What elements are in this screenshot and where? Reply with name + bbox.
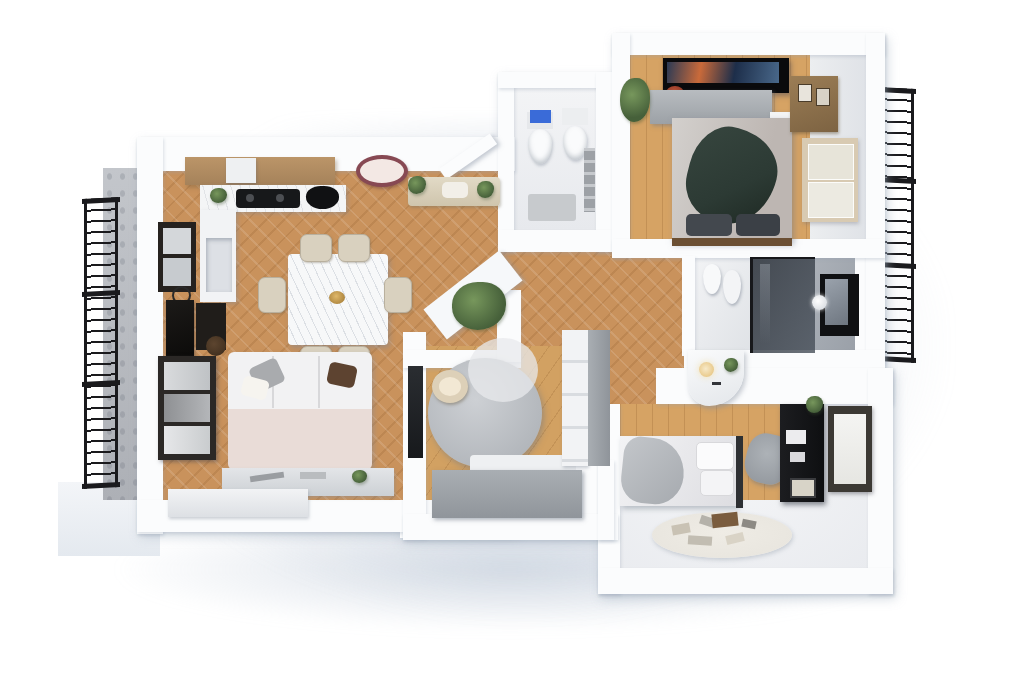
master-pillow [686, 214, 732, 236]
desk-frame [790, 478, 816, 498]
fruit-bowl [329, 291, 345, 304]
bed2-pillow [696, 442, 734, 470]
master-window-pane [808, 182, 854, 218]
master-window-pane [808, 144, 854, 180]
range-hood [226, 158, 256, 183]
left-balcony-railing [84, 197, 118, 489]
bath-wall-left [682, 256, 695, 356]
railing-bar [82, 197, 120, 204]
living-wall-left [137, 137, 163, 534]
wc-bath-mat [528, 194, 576, 221]
wall-niche [408, 366, 423, 458]
wc-wall-top [498, 72, 612, 88]
console-stool [206, 336, 226, 356]
master-wall-top [612, 33, 885, 55]
dining-chair [338, 234, 370, 262]
round-mirror [812, 295, 827, 310]
wc-blue-cistern [530, 110, 551, 123]
wc-wall-right [596, 72, 612, 252]
sofa-seat-line [318, 356, 320, 408]
console-decor [300, 472, 326, 479]
vanity-lamp [699, 362, 714, 377]
low-sideboard [168, 489, 308, 517]
pendant-lamp [356, 155, 408, 187]
kitchen-sink [306, 186, 339, 209]
desk-paper [790, 452, 805, 462]
media-shelf [164, 426, 210, 454]
wc-wall-shelf [584, 148, 595, 212]
bench-pillow [442, 182, 468, 198]
daybed-overlap [468, 338, 538, 402]
wall-art [166, 300, 194, 356]
dining-chair [384, 277, 412, 313]
master-tv-screen [667, 62, 779, 83]
railing-bar [82, 290, 120, 297]
wardrobe [562, 330, 588, 466]
shelf-frame [798, 84, 812, 102]
window-left-glass [163, 258, 191, 286]
dining-chair [258, 277, 286, 313]
bedroom2-window-glass [834, 414, 866, 484]
bath-picture-inner [825, 279, 848, 325]
master-pillow [736, 214, 780, 236]
window-left-glass [163, 228, 191, 254]
shelf-frame [816, 88, 830, 106]
bedroom2-wall-bottom [598, 568, 893, 594]
burner [246, 194, 254, 202]
dining-chair [300, 234, 332, 262]
master-foot-bench [672, 238, 792, 246]
rug-toy [711, 512, 738, 529]
corner-bench [432, 470, 582, 518]
bidet-tank [562, 108, 588, 125]
media-shelf [164, 394, 210, 422]
master-wall-left [612, 33, 630, 257]
kitchen-upper-cabinets [185, 157, 335, 185]
shower-highlight [760, 264, 770, 344]
lounge-wall-right-stub [598, 460, 614, 540]
bed2-frame-bar [736, 436, 743, 508]
wc-wall-left [498, 72, 514, 252]
vanity-faucet [712, 382, 721, 385]
counter-niche [206, 238, 232, 292]
railing-bar [82, 380, 120, 387]
wardrobe-side [588, 330, 610, 466]
rug-toy [688, 535, 713, 546]
burner [276, 194, 284, 202]
wc-wall-bottom [498, 230, 612, 252]
media-shelf [164, 362, 210, 390]
outer-wall-right [866, 33, 885, 363]
bed2-pillow [700, 470, 734, 496]
right-balcony-railing [880, 87, 914, 363]
round-cushion [432, 370, 468, 403]
desk-paper [786, 430, 806, 444]
floorplan-stage [0, 0, 1024, 682]
